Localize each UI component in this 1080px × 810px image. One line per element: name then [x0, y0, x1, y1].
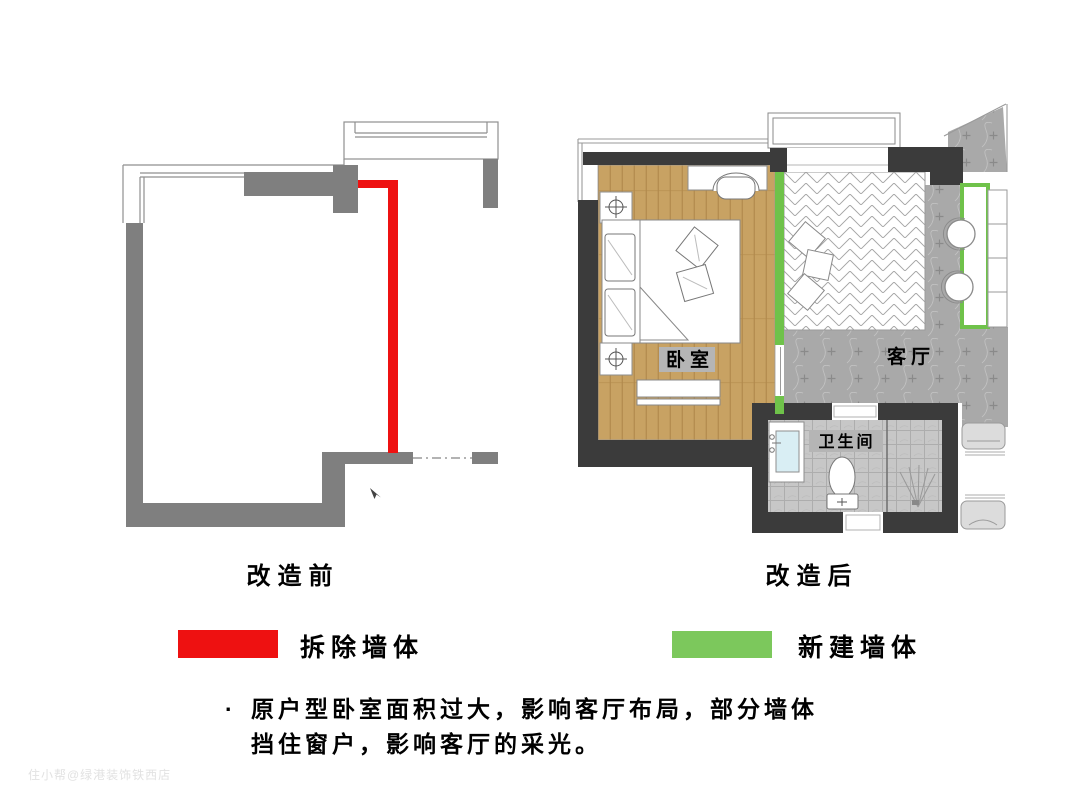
legend-demolish-label: 拆除墙体 — [300, 628, 424, 664]
sink — [769, 422, 804, 482]
cursor-arrow — [370, 488, 381, 499]
floor-plan-after: 卧室 客厅 — [575, 95, 1015, 545]
legend-new-wall-swatch — [672, 631, 772, 658]
bedroom-label: 卧室 — [659, 347, 715, 372]
plan-title-after: 改造后 — [752, 556, 872, 591]
bed — [602, 220, 740, 343]
dresser — [637, 380, 720, 405]
legend-new-wall-label: 新建墙体 — [798, 628, 922, 664]
page: 卧室 客厅 — [0, 0, 1080, 810]
notes: · 原户型卧室面积过大，影响客厅布局，部分墙体 挡住窗户，影响客厅的采光。 — [225, 692, 885, 762]
walls-before — [126, 159, 498, 527]
legend-demolish-swatch — [178, 630, 278, 658]
living-room-label: 客厅 — [887, 345, 935, 368]
bench — [988, 190, 1007, 327]
note-line-2: 挡住窗户，影响客厅的采光。 — [251, 727, 818, 762]
svg-text:卫生间: 卫生间 — [818, 432, 875, 451]
demolished-wall — [358, 180, 398, 453]
svg-text:卧室: 卧室 — [666, 348, 714, 371]
floor-plan-before — [100, 100, 520, 540]
dining-chairs — [961, 423, 1005, 529]
note-line-1: 原户型卧室面积过大，影响客厅布局，部分墙体 — [251, 692, 818, 727]
watermark: 住小帮@绿港装饰铁西店 — [28, 766, 171, 783]
plan-title-before: 改造前 — [233, 556, 353, 591]
new-wall — [775, 172, 784, 414]
bay-window — [768, 113, 900, 172]
note-bullet: · — [225, 692, 251, 762]
bathroom-label: 卫生间 — [809, 430, 883, 452]
note-text: 原户型卧室面积过大，影响客厅布局，部分墙体 挡住窗户，影响客厅的采光。 — [251, 692, 818, 762]
new-wall-bar — [962, 185, 988, 327]
